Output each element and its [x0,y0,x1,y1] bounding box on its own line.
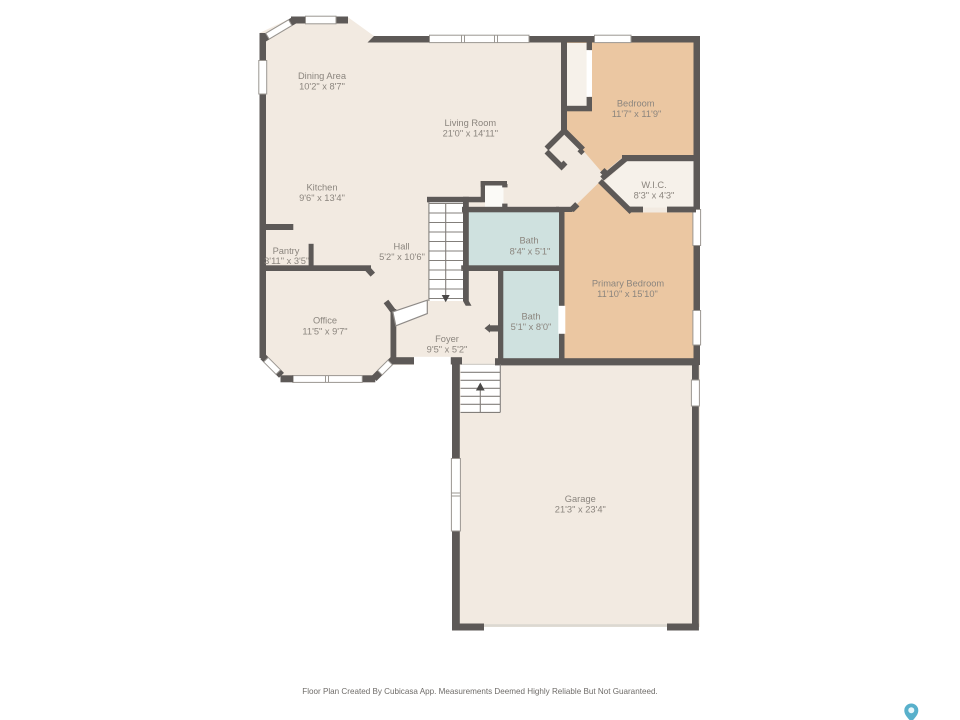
svg-text:5'2" x 10'6": 5'2" x 10'6" [379,252,425,262]
svg-text:Pantry: Pantry [273,246,300,256]
svg-text:W.I.C.: W.I.C. [641,180,666,190]
svg-text:Bath: Bath [519,236,538,246]
svg-text:11'5" x 9'7": 11'5" x 9'7" [302,327,347,337]
svg-text:9'6" x 13'4": 9'6" x 13'4" [299,193,345,203]
svg-text:Floor Plan Created By Cubicasa: Floor Plan Created By Cubicasa App. Meas… [302,687,657,696]
svg-text:Living Room: Living Room [444,118,496,128]
svg-text:3'11" x 3'5": 3'11" x 3'5" [264,256,309,266]
svg-text:5'1" x 8'0": 5'1" x 8'0" [511,322,552,332]
svg-text:Dining Area: Dining Area [298,71,347,81]
svg-text:Bedroom: Bedroom [617,99,655,109]
svg-text:10'2" x 8'7": 10'2" x 8'7" [299,82,345,92]
svg-text:Kitchen: Kitchen [306,183,337,193]
svg-text:Bath: Bath [521,312,540,322]
svg-text:Hall: Hall [393,242,409,252]
svg-text:Foyer: Foyer [435,334,459,344]
svg-text:21'3" x 23'4": 21'3" x 23'4" [555,505,606,515]
svg-text:9'5" x 5'2": 9'5" x 5'2" [427,345,468,355]
svg-text:21'0" x 14'11": 21'0" x 14'11" [443,129,498,139]
svg-text:11'7" x 11'9": 11'7" x 11'9" [612,109,662,119]
svg-text:8'3" x 4'3": 8'3" x 4'3" [634,191,675,201]
svg-text:Primary Bedroom: Primary Bedroom [592,279,665,289]
svg-text:Garage: Garage [565,494,596,504]
svg-text:8'4" x 5'1": 8'4" x 5'1" [510,247,551,257]
svg-text:Office: Office [313,316,337,326]
svg-text:11'10" x 15'10": 11'10" x 15'10" [597,289,658,299]
